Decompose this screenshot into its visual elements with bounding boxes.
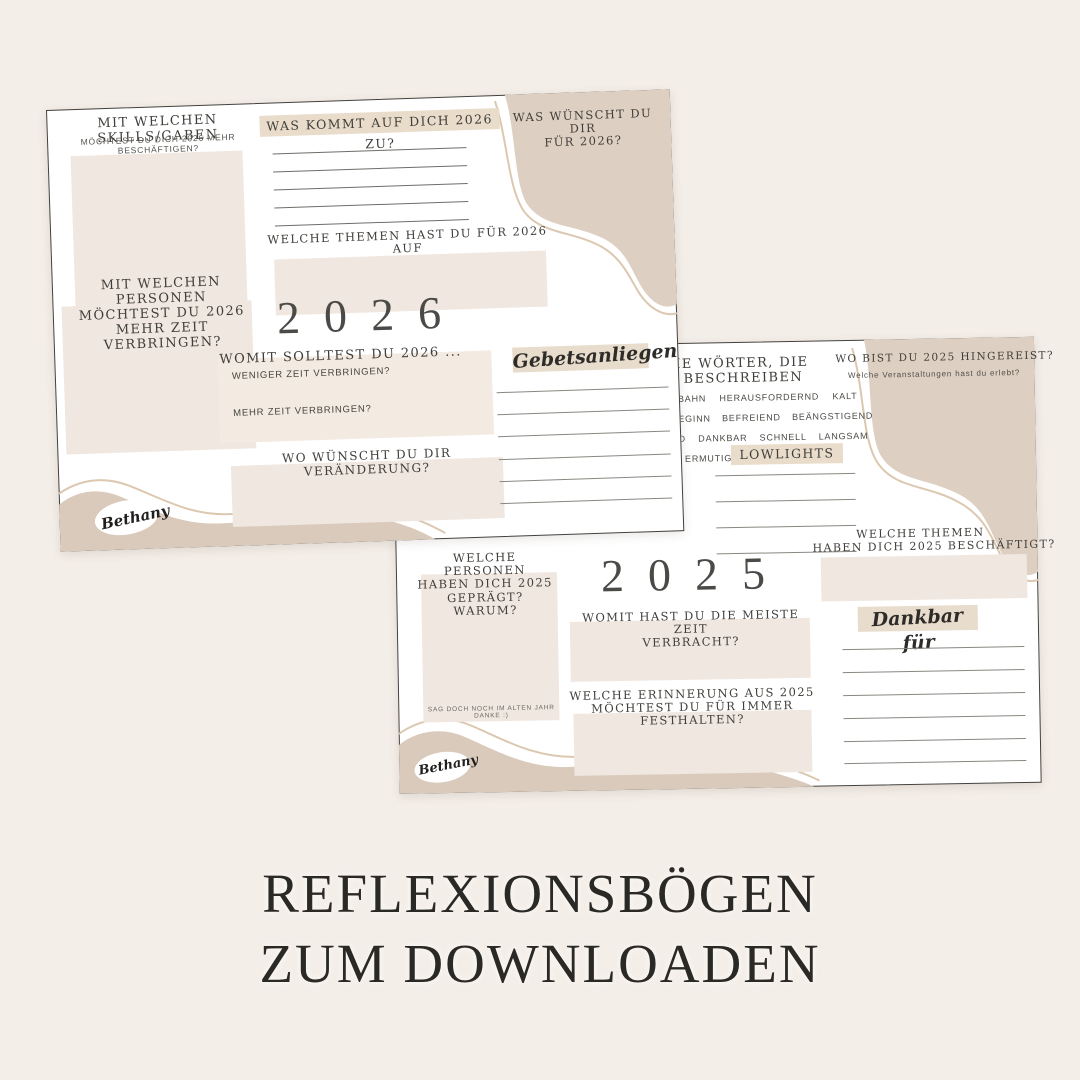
page-title-line1: REFLEXIONSBÖGEN [0,862,1080,925]
wish-question-heading: WAS WÜNSCHT DU DIR FÜR 2026? [499,106,666,151]
persons-note: SAG DOCH NOCH IM ALTEN JAHR DANKE :) [423,704,559,720]
write-line [844,760,1026,764]
year-label-2025: 2025 [589,550,790,599]
words-question-heading-line2: BESCHREIBEN [683,371,803,388]
write-line [500,497,672,504]
lowlights-label: LOWLIGHTS [731,443,843,465]
write-line [499,453,671,460]
write-line [498,430,670,437]
prayer-label: Gebetsanliegen [512,341,649,375]
write-line [500,475,672,482]
persons-question-heading: WELCHE PERSONEN HABEN DICH 2025 GEPRÄGT?… [415,550,556,619]
worksheet-2026: MIT WELCHEN SKILLS/GABEN MÖCHTEST DU DIC… [46,89,684,551]
prayer-highlight: Gebetsanliegen [512,343,649,372]
persons-question-heading: MIT WELCHEN PERSONEN MÖCHTEST DU 2026 ME… [53,274,271,356]
write-line [274,183,468,190]
time-question-heading: WOMIT HAST DU DIE MEISTE ZEIT VERBRACHT? [568,608,815,652]
grateful-label: Dankbar für [857,603,979,659]
write-line [275,219,469,226]
themes-answer-box [821,554,1028,602]
write-line [497,409,669,416]
come-question-highlight: WAS KOMMT AUF DICH 2026 ZU? [259,108,500,137]
promo-graphic: MIT WELCHEN SKILLS/GABEN MÖCHTEST DU DIC… [0,0,1080,1080]
themes-question-heading: WELCHE THEMEN HABEN DICH 2025 BESCHÄFTIG… [812,526,1028,555]
grateful-highlight: Dankbar für [858,605,978,632]
lowlights-highlight: LOWLIGHTS [731,443,843,465]
write-line [273,165,467,172]
memory-question-heading: WELCHE ERINNERUNG AUS 2025 MÖCHTEST DU F… [569,686,816,730]
write-line [844,715,1026,719]
write-line [843,669,1025,673]
write-line [497,387,669,394]
page-title-line2: ZUM DOWNLOADEN [0,932,1080,995]
write-line [844,738,1026,742]
write-line [274,201,468,208]
write-line [843,692,1025,696]
